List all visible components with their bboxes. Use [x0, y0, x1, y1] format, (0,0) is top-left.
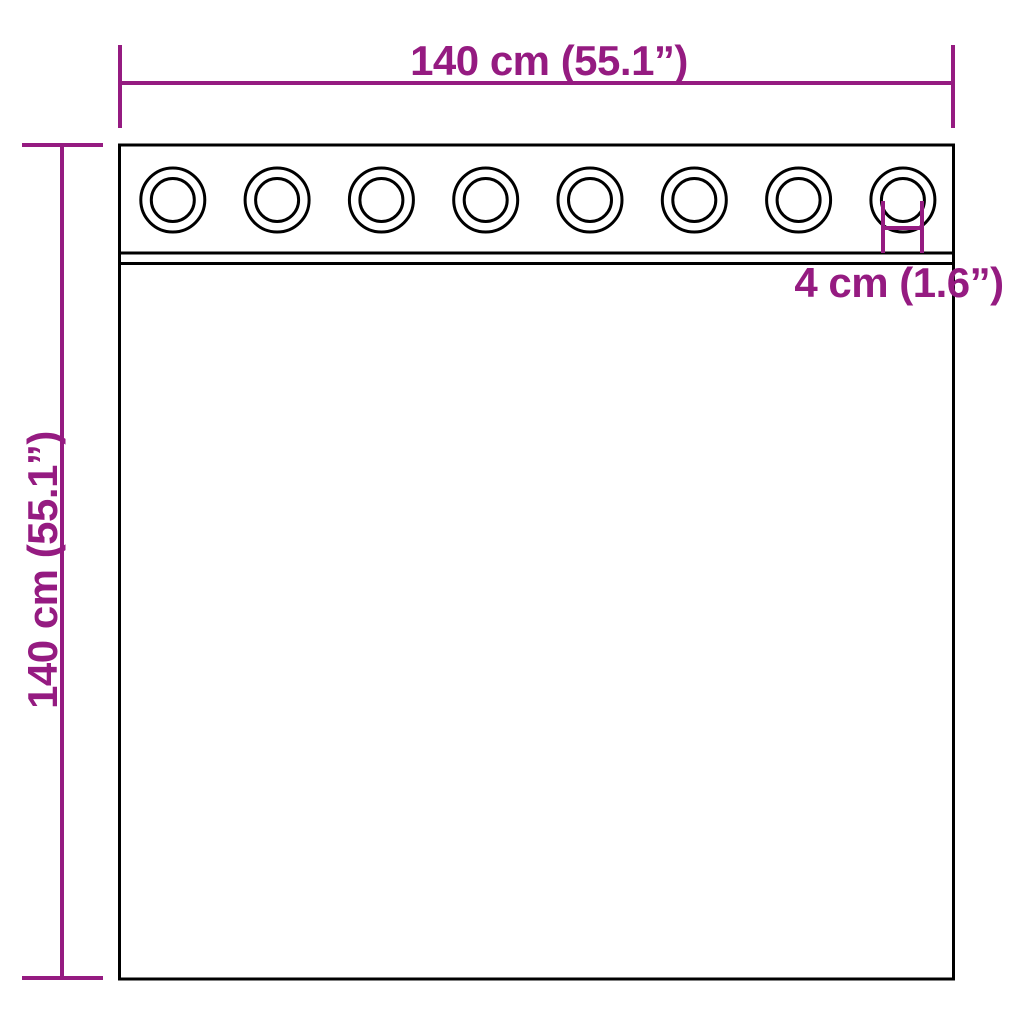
height-dimension-label: 140 cm (55.1”): [19, 431, 66, 709]
diagram-svg: 140 cm (55.1”) 140 cm (55.1”) 4 cm (1.6”…: [0, 0, 1024, 1024]
width-dimension: 140 cm (55.1”): [120, 37, 953, 128]
curtain-dimension-diagram: 140 cm (55.1”) 140 cm (55.1”) 4 cm (1.6”…: [0, 0, 1024, 1024]
grommet-dimension-label: 4 cm (1.6”): [794, 259, 1003, 306]
width-dimension-label: 140 cm (55.1”): [410, 37, 688, 84]
height-dimension: 140 cm (55.1”): [19, 145, 103, 978]
